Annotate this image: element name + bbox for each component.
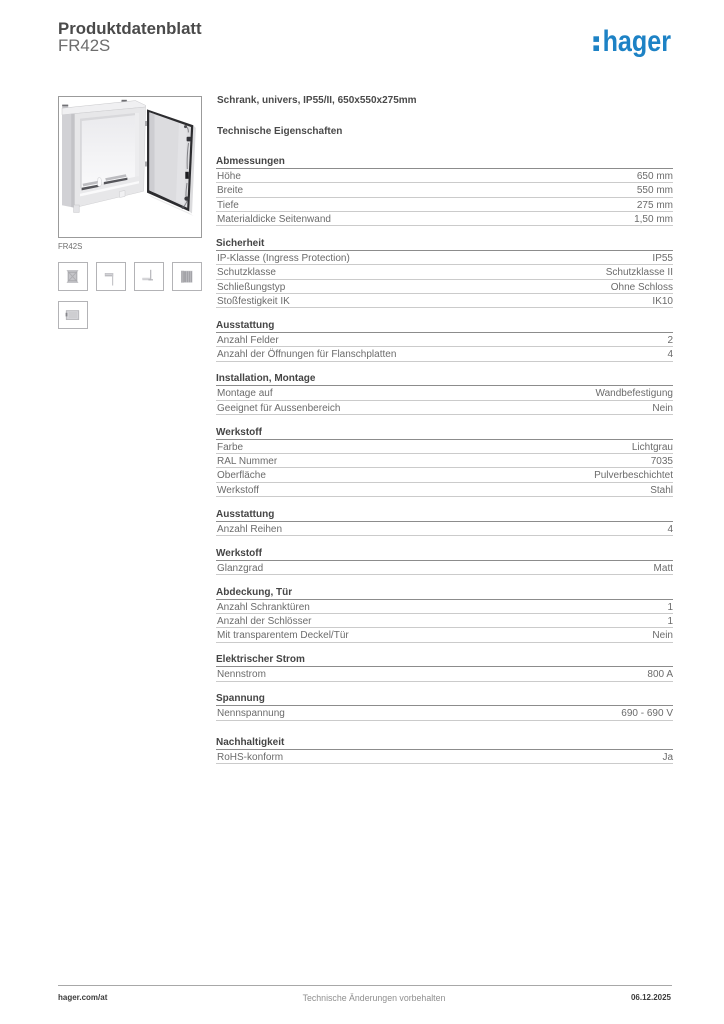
svg-text:hager: hager: [603, 25, 672, 58]
